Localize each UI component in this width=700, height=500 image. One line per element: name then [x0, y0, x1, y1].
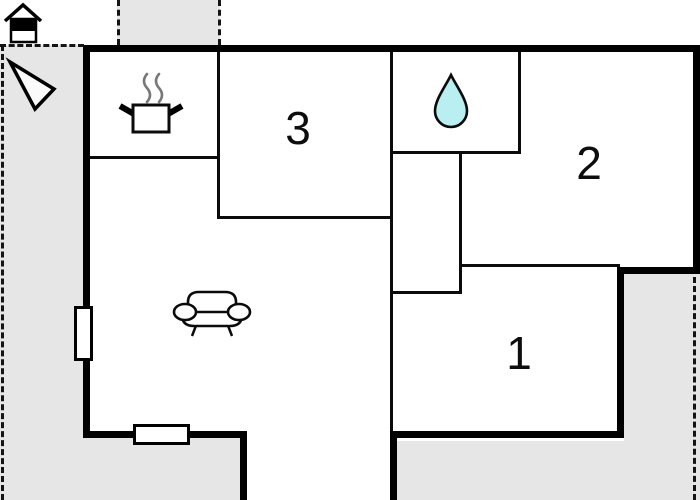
ground-area-right — [624, 274, 700, 500]
sofa-icon — [172, 285, 252, 340]
window-bottom-wall — [133, 424, 190, 445]
wall-bottom-right — [390, 431, 624, 438]
interior-wall-room3-bottom — [217, 216, 393, 219]
ground-area-top — [117, 0, 220, 45]
interior-wall-closet-right — [459, 151, 462, 294]
room2-label: 2 — [576, 140, 602, 186]
wall-right-upper — [693, 45, 700, 274]
house-icon — [2, 1, 46, 45]
wall-top — [83, 45, 700, 52]
wall-entrance-left — [240, 431, 247, 500]
interior-wall-kitchen-bottom — [90, 156, 217, 159]
water-drop-shape — [435, 75, 467, 127]
window-left-wall — [74, 306, 93, 361]
interior-wall-room1-top — [459, 264, 620, 267]
room3-label: 3 — [285, 105, 311, 151]
ground-area-bottom-left — [83, 438, 240, 500]
interior-wall-closet-bottom — [390, 291, 462, 294]
boundary-dash-carport-left — [117, 0, 120, 45]
interior-wall-bathroom-bottom — [390, 151, 521, 154]
water-drop-icon — [430, 72, 472, 132]
interior-wall-bathroom-right — [518, 52, 521, 154]
wall-left — [83, 45, 90, 437]
wall-right-lower — [617, 267, 624, 438]
interior-wall-kitchen-room3 — [217, 52, 220, 218]
room1-label: 1 — [506, 330, 532, 376]
wall-southeast-step — [617, 267, 700, 274]
boundary-dash-carport-right — [218, 0, 221, 45]
cooking-pot-icon — [112, 68, 190, 138]
ground-area-bottom-right — [396, 441, 624, 500]
interior-wall-central — [390, 52, 393, 431]
north-arrow-icon — [3, 54, 63, 116]
floor-plan: 3 2 1 — [0, 0, 700, 500]
wall-entrance-right — [390, 431, 397, 500]
boundary-dash-right — [693, 277, 696, 500]
